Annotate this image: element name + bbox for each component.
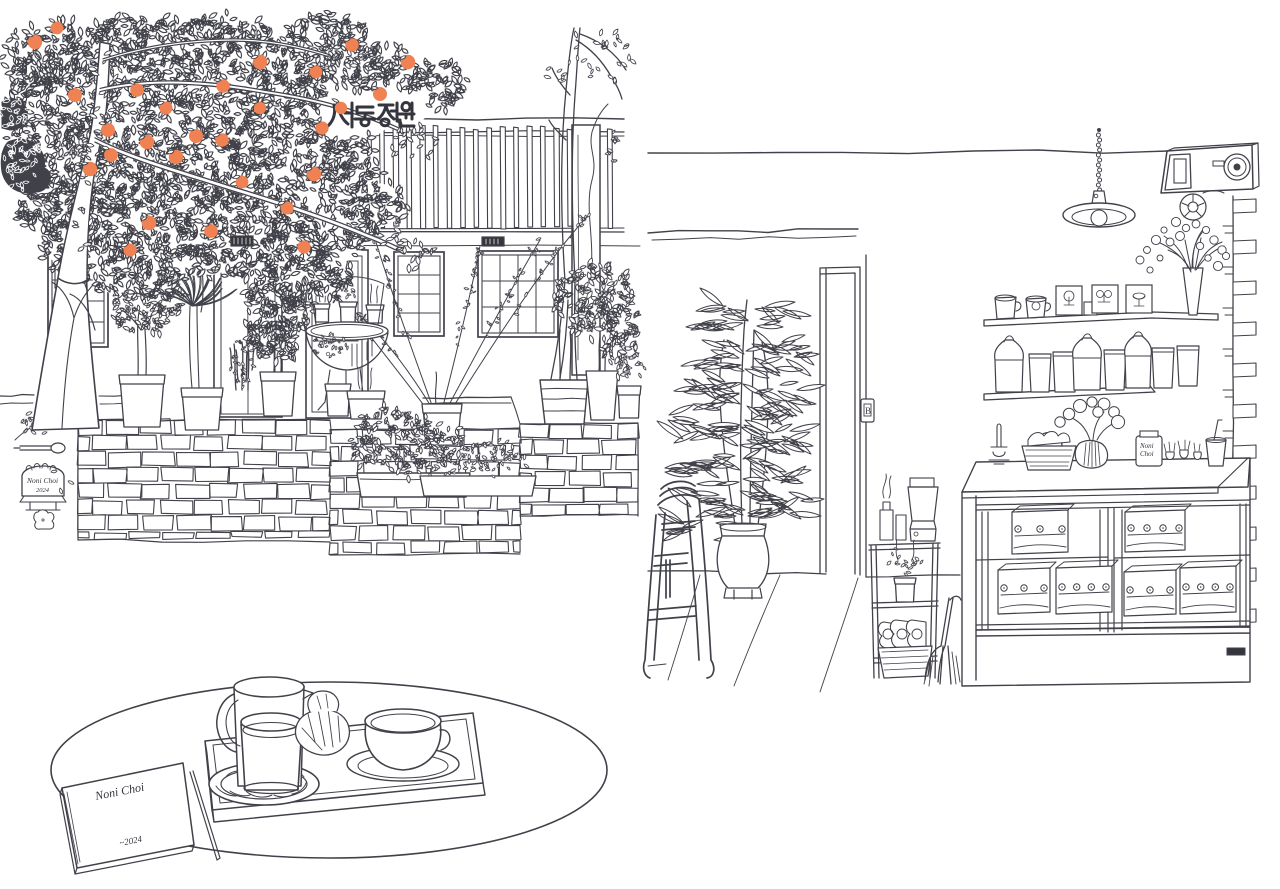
svg-text:Noni Choi: Noni Choi [26,476,58,485]
svg-text:B: B [865,406,871,416]
svg-text:Choi: Choi [1140,450,1154,458]
svg-text:Noni: Noni [1139,442,1154,450]
svg-text:2024: 2024 [36,487,50,494]
